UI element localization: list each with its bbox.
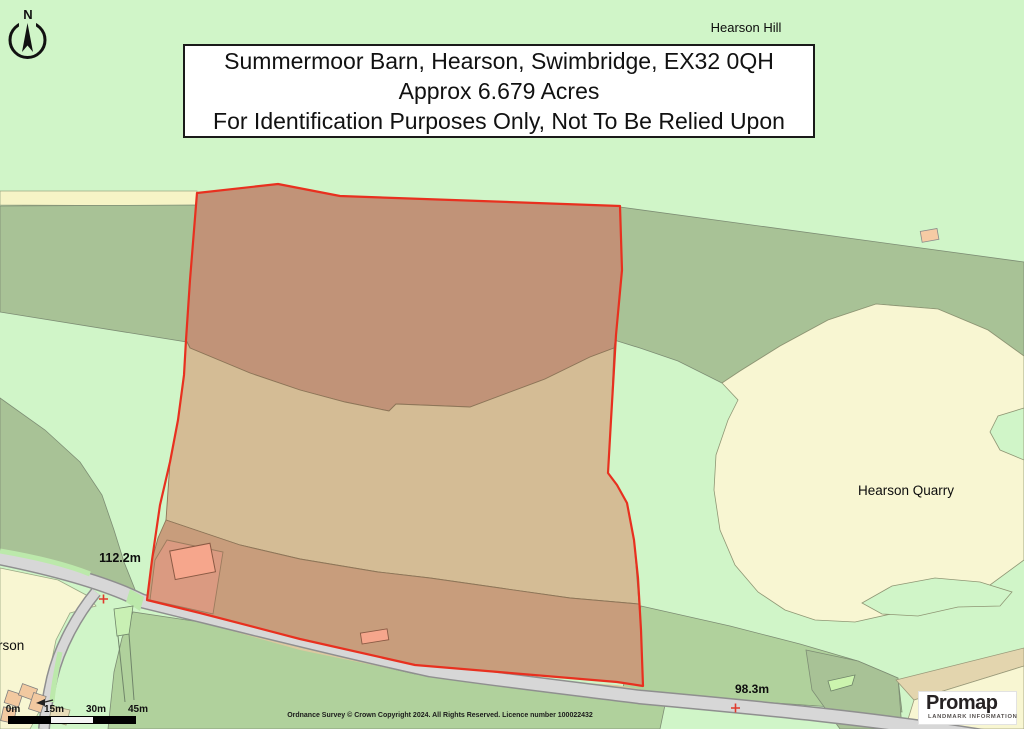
title-acreage: Approx 6.679 Acres [399, 76, 600, 106]
scale-segment-1 [9, 717, 51, 723]
scale-segment-2 [51, 717, 93, 723]
outbuilding-north [920, 229, 939, 243]
label-hearson-quarry: Hearson Quarry [858, 483, 954, 498]
north-arrow-label: N [20, 8, 36, 22]
os-copyright: Ordnance Survey © Crown Copyright 2024. … [287, 712, 593, 719]
scale-segment-3 [93, 717, 135, 723]
title-disclaimer: For Identification Purposes Only, Not To… [213, 106, 785, 136]
label-partial-place: rson [0, 638, 24, 653]
scale-bar: 0m 15m 30m 45m [8, 704, 140, 726]
promap-brand: Promap [926, 693, 1016, 714]
north-arrow: N [6, 6, 52, 64]
scale-tick-30: 30m [86, 704, 106, 715]
label-hearson-hill: Hearson Hill [711, 20, 782, 35]
title-address: Summermoor Barn, Hearson, Swimbridge, EX… [224, 46, 774, 76]
minor-road-yellow [0, 191, 197, 206]
promap-logo: Promap LANDMARK INFORMATION [918, 691, 1017, 725]
promap-site-plan[interactable]: N Summermoor Barn, Hearson, Swimbridge, … [0, 0, 1024, 729]
scale-tick-0: 0m [6, 704, 20, 715]
scale-tick-45: 45m [128, 704, 148, 715]
title-box: Summermoor Barn, Hearson, Swimbridge, EX… [183, 44, 815, 138]
scale-bar-segments [8, 716, 136, 724]
label-spot-height-112: 112.2m [99, 551, 141, 565]
scale-tick-15: 15m [44, 704, 64, 715]
promap-tagline-row: LANDMARK INFORMATION [926, 714, 1016, 720]
label-spot-height-98: 98.3m [735, 682, 769, 696]
promap-tagline: LANDMARK INFORMATION [928, 714, 1018, 720]
